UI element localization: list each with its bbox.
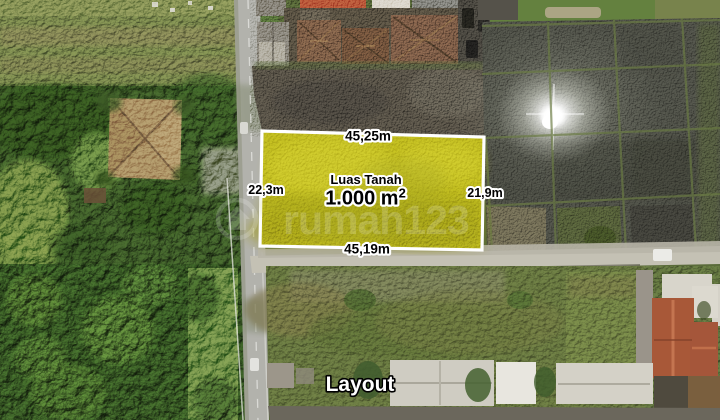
svg-text:45,19m: 45,19m bbox=[344, 242, 390, 257]
svg-text:Luas Tanah: Luas Tanah bbox=[330, 172, 401, 187]
svg-text:Layout: Layout bbox=[326, 373, 395, 396]
svg-text:45,25m: 45,25m bbox=[345, 128, 391, 143]
svg-text:22,3m: 22,3m bbox=[248, 183, 283, 197]
svg-text:1.000 m2: 1.000 m2 bbox=[325, 186, 406, 210]
svg-text:21,9m: 21,9m bbox=[467, 186, 502, 200]
